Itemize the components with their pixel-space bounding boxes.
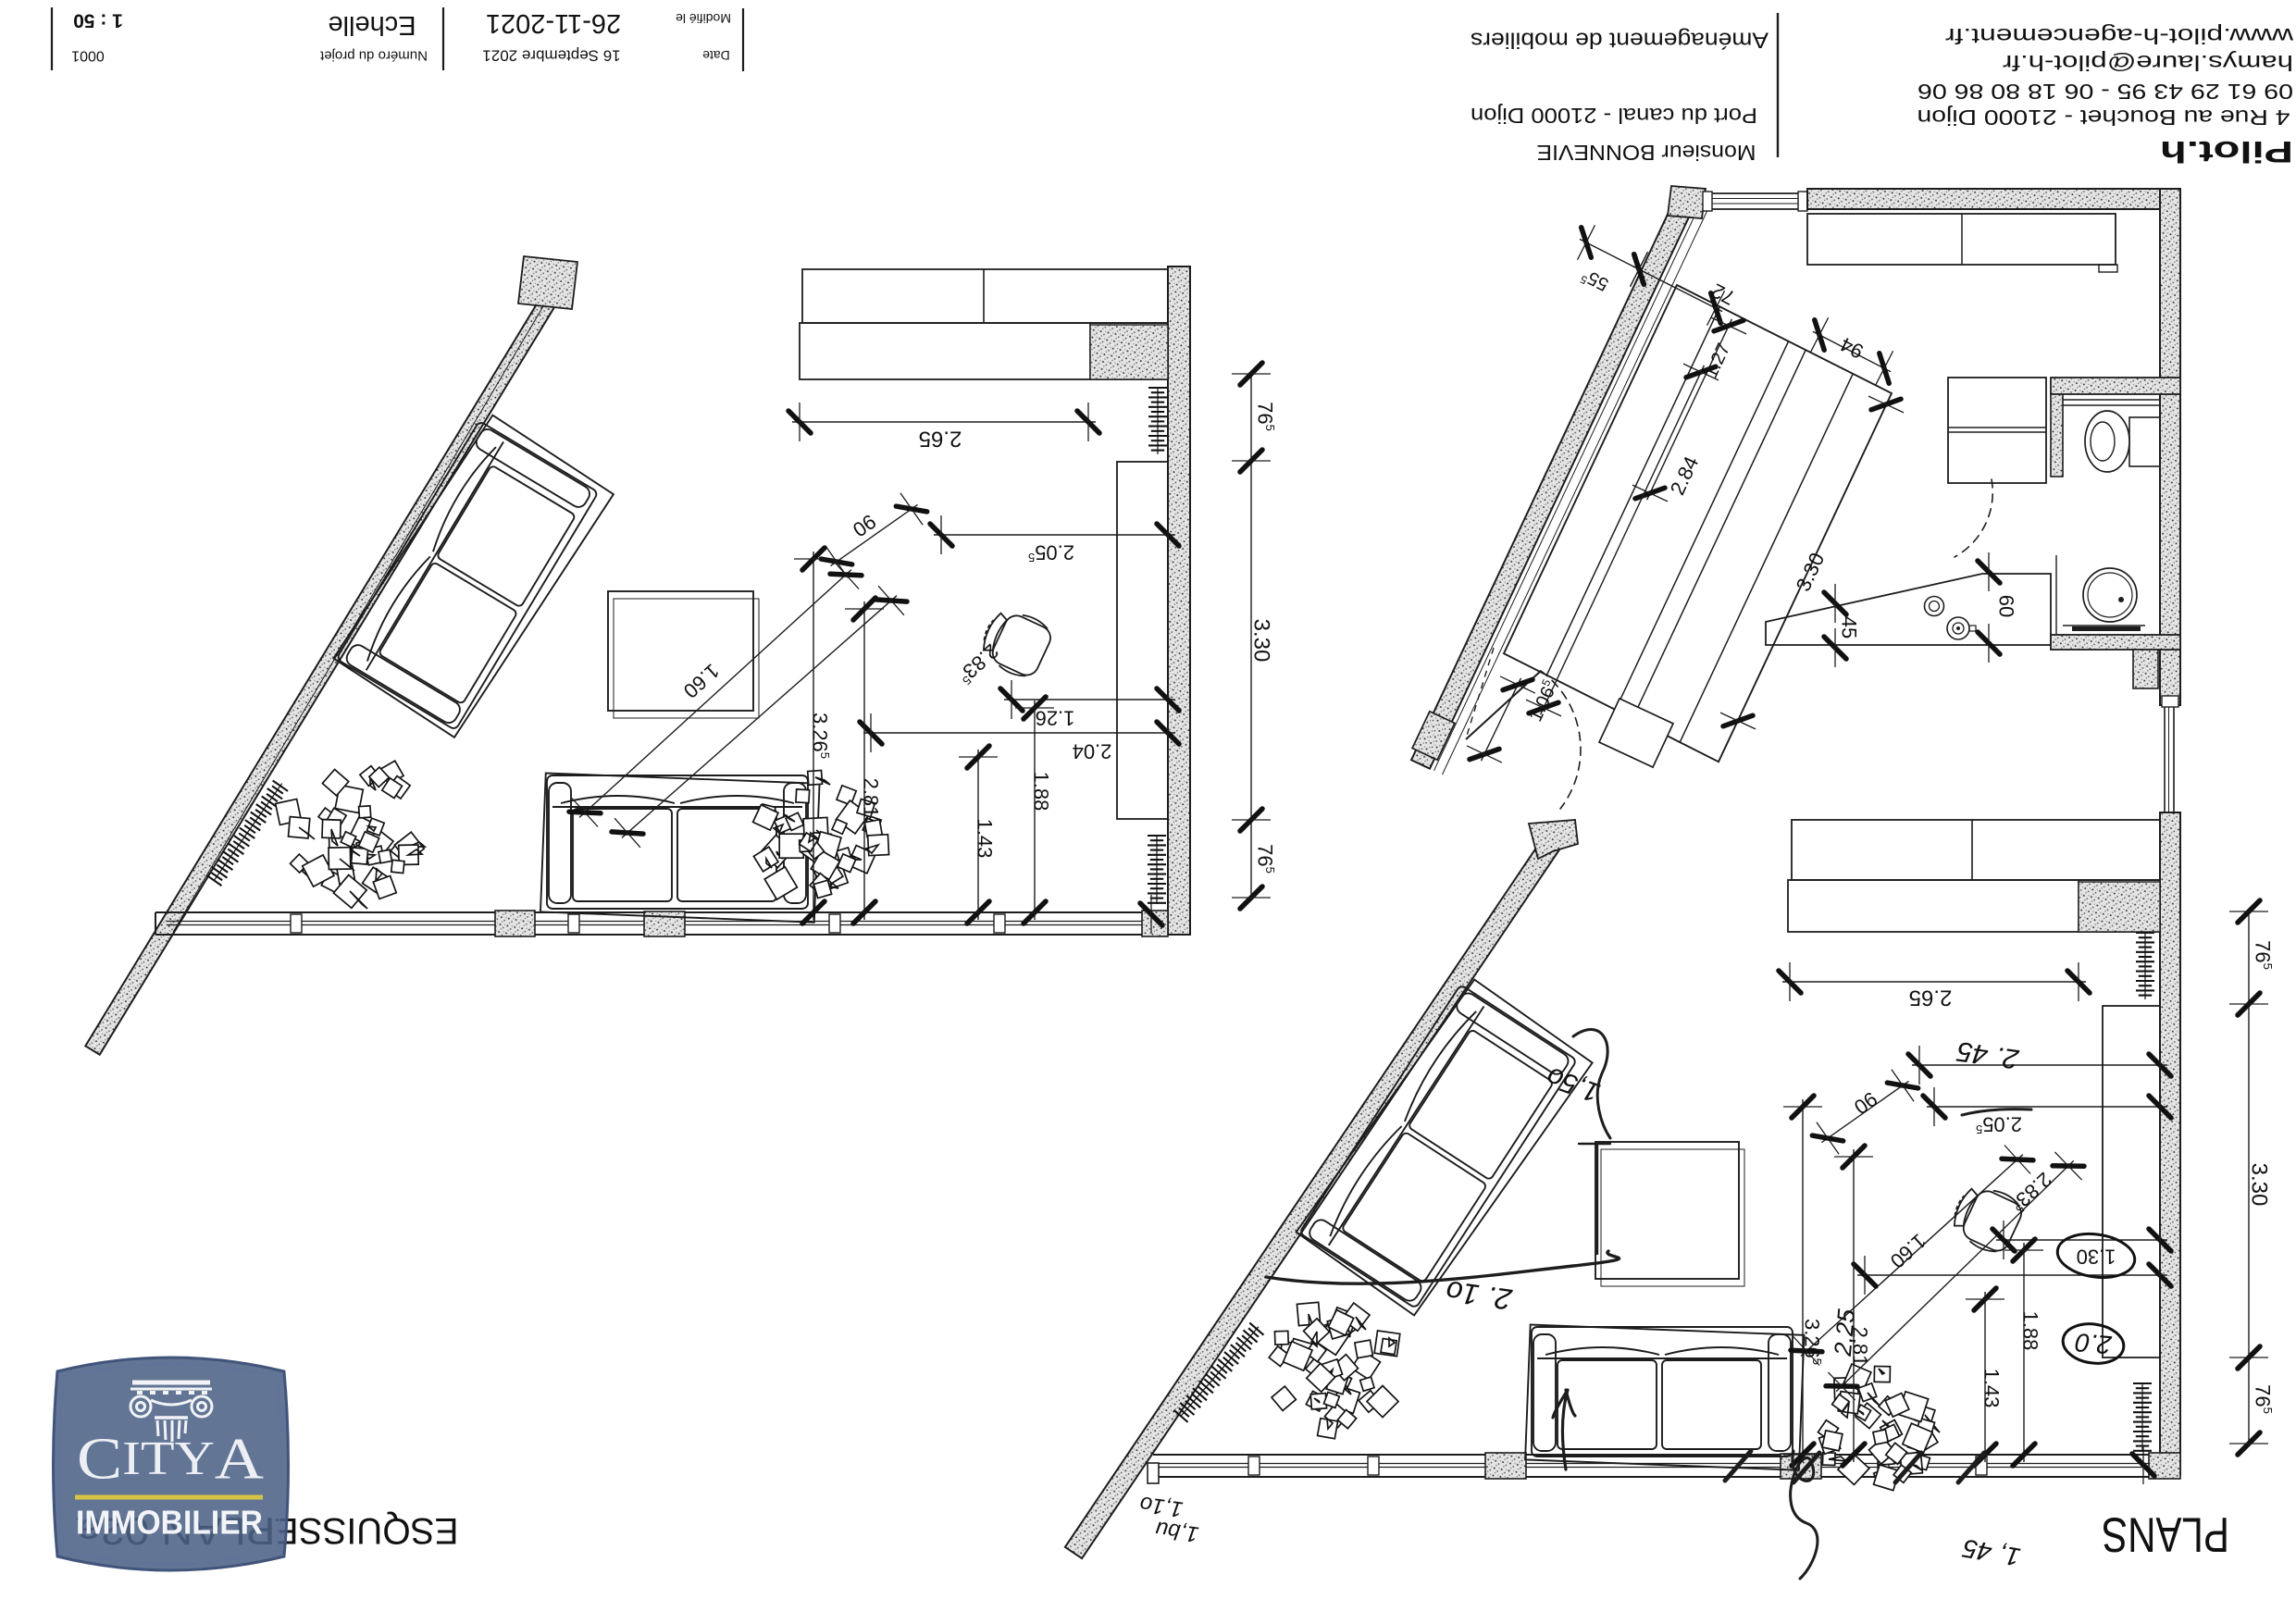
svg-text:2.055: 2.055 (1028, 541, 1074, 565)
svg-text:1.30: 1.30 (2077, 1246, 2116, 1269)
svg-text:1 : 50: 1 : 50 (73, 10, 123, 31)
svg-text:09 61 29 43 95 - 06 18 80 86 0: 09 61 29 43 95 - 06 18 80 86 06 (1917, 80, 2293, 104)
svg-text:60: 60 (1995, 595, 2018, 617)
svg-text:Aménagement de mobiliers: Aménagement de mobiliers (1471, 28, 1769, 53)
svg-text:3.265: 3.265 (1801, 1319, 1825, 1365)
svg-text:2.0: 2.0 (2074, 1328, 2114, 1359)
svg-text:3.30: 3.30 (1249, 619, 1274, 663)
svg-text:1.43: 1.43 (974, 819, 997, 859)
svg-text:45: 45 (1838, 616, 1861, 638)
svg-text:hamys.laure@pilot-h.fr: hamys.laure@pilot-h.fr (2003, 51, 2293, 75)
svg-text:Pilot.h: Pilot.h (2160, 135, 2293, 168)
svg-text:Monsieur BONNEVIE: Monsieur BONNEVIE (1537, 141, 1756, 165)
svg-text:3.30: 3.30 (2247, 1163, 2272, 1207)
svg-text:0001: 0001 (71, 48, 105, 64)
svg-text:ESQUISSE: ESQUISSE (275, 1510, 459, 1551)
svg-text:2,25: 2,25 (1829, 1308, 1860, 1358)
svg-text:4 Rue au Bouchet - 21000 Dijon: 4 Rue au Bouchet - 21000 Dijon (1917, 105, 2290, 130)
svg-text:Date: Date (702, 48, 730, 63)
svg-text:1.43: 1.43 (1980, 1369, 2004, 1408)
svg-text:26-11-2021: 26-11-2021 (486, 8, 621, 38)
svg-text:16 Septembre 2021: 16 Septembre 2021 (482, 47, 620, 65)
svg-text:2.65: 2.65 (919, 427, 962, 452)
svg-text:2.055: 2.055 (1976, 1113, 2022, 1137)
svg-text:2.65: 2.65 (1909, 986, 1953, 1010)
svg-text:Modifié le: Modifié le (676, 11, 731, 26)
svg-text:3.265: 3.265 (809, 713, 833, 759)
svg-text:PLANS: PLANS (2102, 1507, 2229, 1562)
svg-text:1.88: 1.88 (2019, 1311, 2042, 1351)
svg-text:CITYA: CITYA (77, 1426, 264, 1492)
svg-text:IMMOBILIER: IMMOBILIER (76, 1504, 263, 1542)
svg-text:2.04: 2.04 (1073, 740, 1112, 763)
svg-text:www.pilot-h-agencement.fr: www.pilot-h-agencement.fr (1945, 24, 2295, 48)
svg-text:1.26: 1.26 (1036, 707, 1075, 730)
svg-text:1.88: 1.88 (1030, 772, 1053, 812)
svg-text:Numéro du projet: Numéro du projet (319, 48, 428, 64)
svg-text:Echelle: Echelle (328, 10, 416, 40)
svg-text:Port du canal - 21000 Dijon: Port du canal - 21000 Dijon (1471, 104, 1757, 128)
svg-text:2.81: 2.81 (860, 778, 883, 818)
